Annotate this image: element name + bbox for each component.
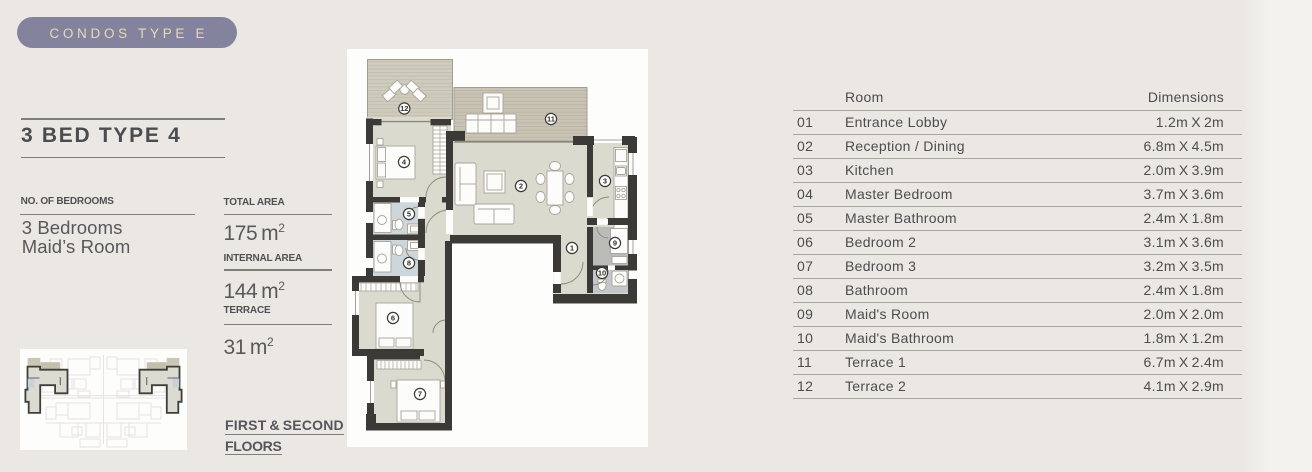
svg-text:5: 5 bbox=[407, 210, 411, 219]
svg-text:10: 10 bbox=[598, 269, 606, 278]
svg-text:11: 11 bbox=[547, 115, 555, 124]
svg-text:2: 2 bbox=[519, 182, 523, 191]
svg-text:1: 1 bbox=[570, 244, 574, 253]
svg-text:8: 8 bbox=[407, 259, 411, 268]
svg-text:6: 6 bbox=[391, 314, 395, 323]
svg-text:9: 9 bbox=[613, 239, 617, 248]
svg-text:3: 3 bbox=[603, 177, 607, 186]
svg-text:12: 12 bbox=[400, 104, 408, 113]
svg-text:7: 7 bbox=[418, 390, 422, 399]
